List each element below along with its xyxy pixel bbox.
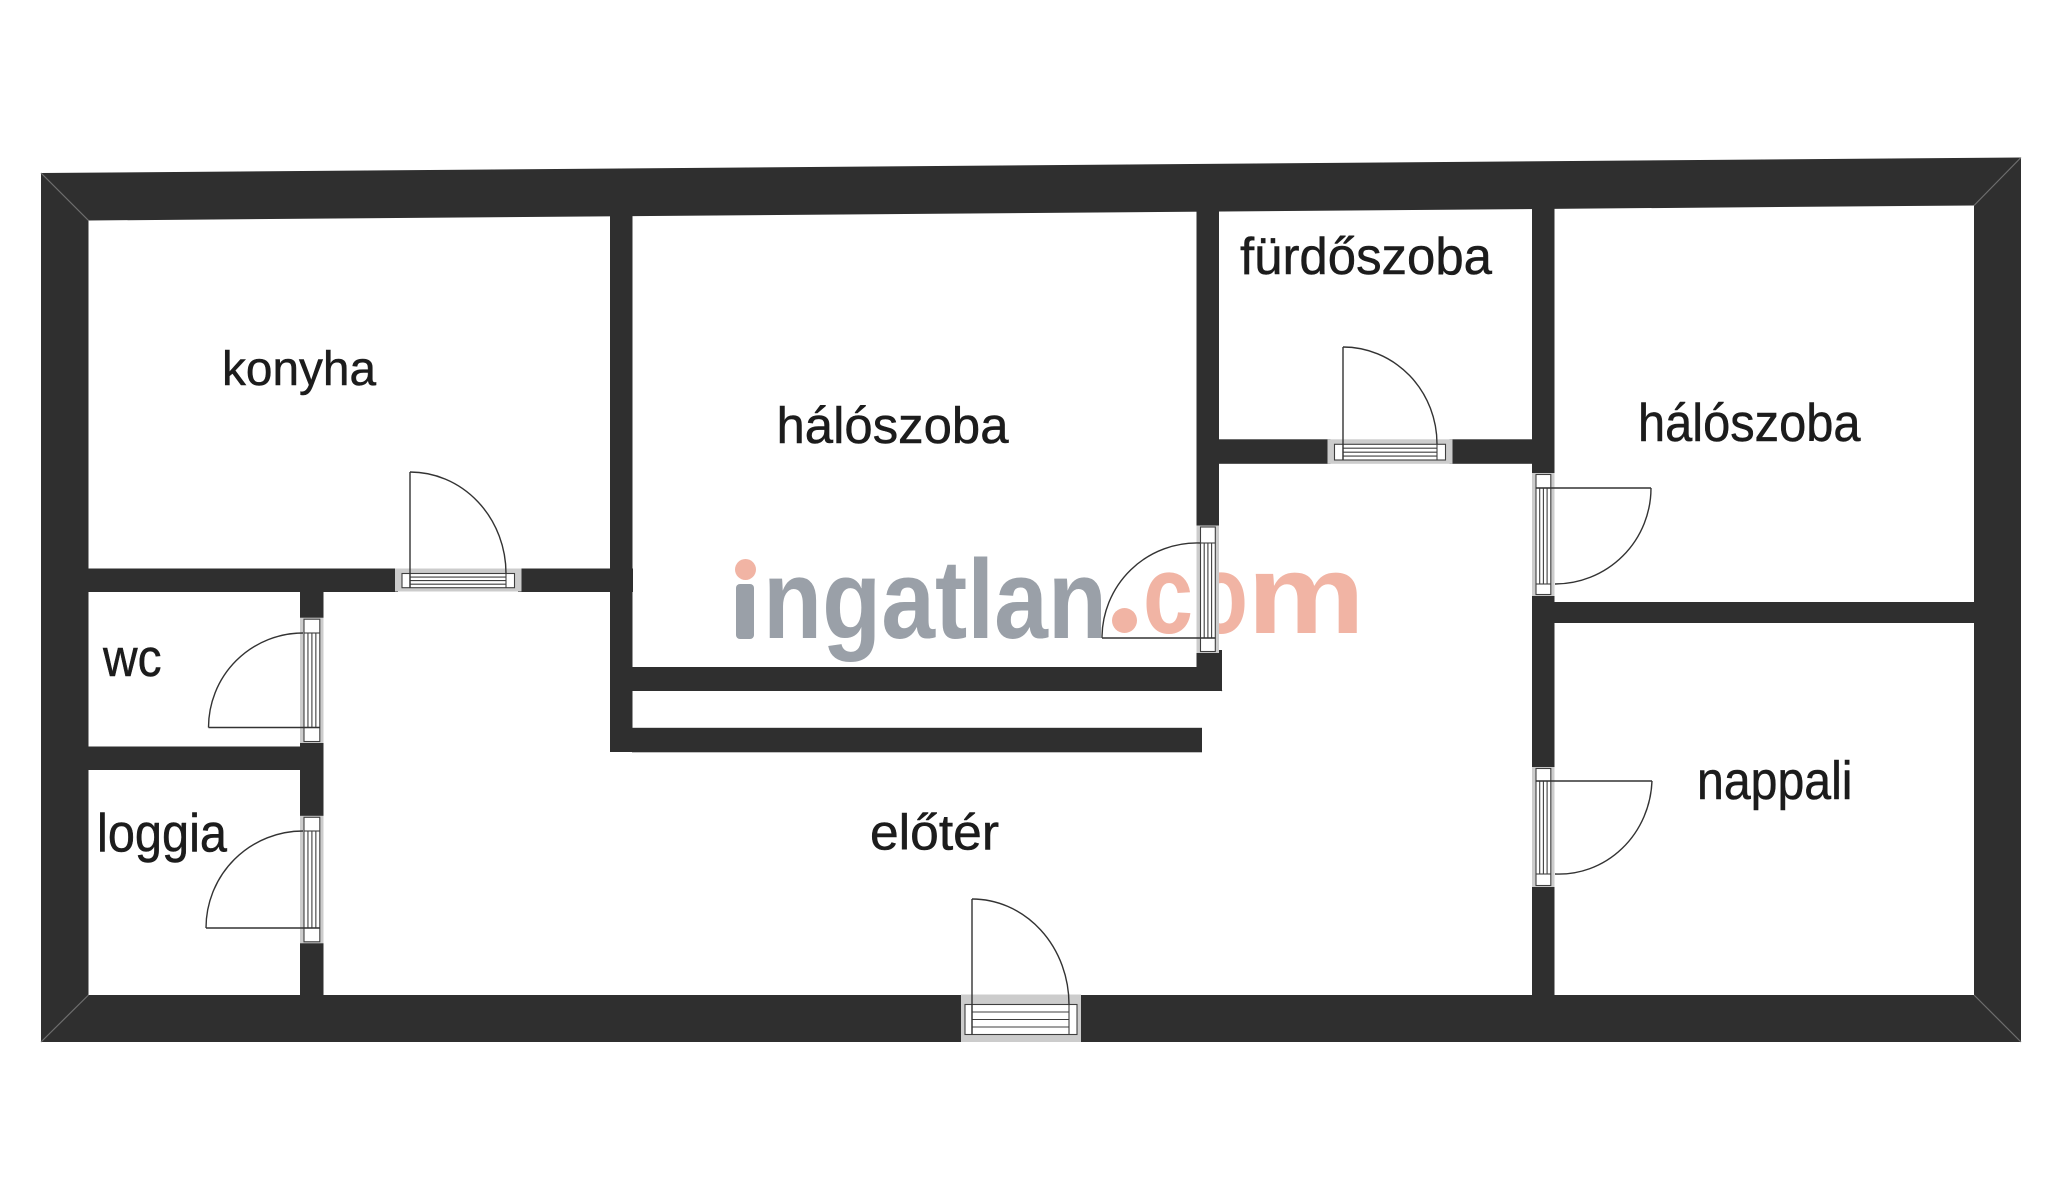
svg-text:loggia: loggia: [97, 804, 228, 864]
svg-text:előtér: előtér: [870, 805, 999, 861]
svg-text:fürdőszoba: fürdőszoba: [1240, 228, 1492, 286]
svg-text:konyha: konyha: [222, 343, 376, 396]
svg-text:hálószoba: hálószoba: [777, 397, 1010, 454]
svg-text:hálószoba: hálószoba: [1638, 394, 1861, 453]
svg-text:m: m: [1247, 532, 1365, 657]
svg-text:nappali: nappali: [1697, 751, 1853, 811]
svg-text:ngatlan: ngatlan: [763, 537, 1107, 662]
svg-text:wc: wc: [102, 629, 161, 688]
